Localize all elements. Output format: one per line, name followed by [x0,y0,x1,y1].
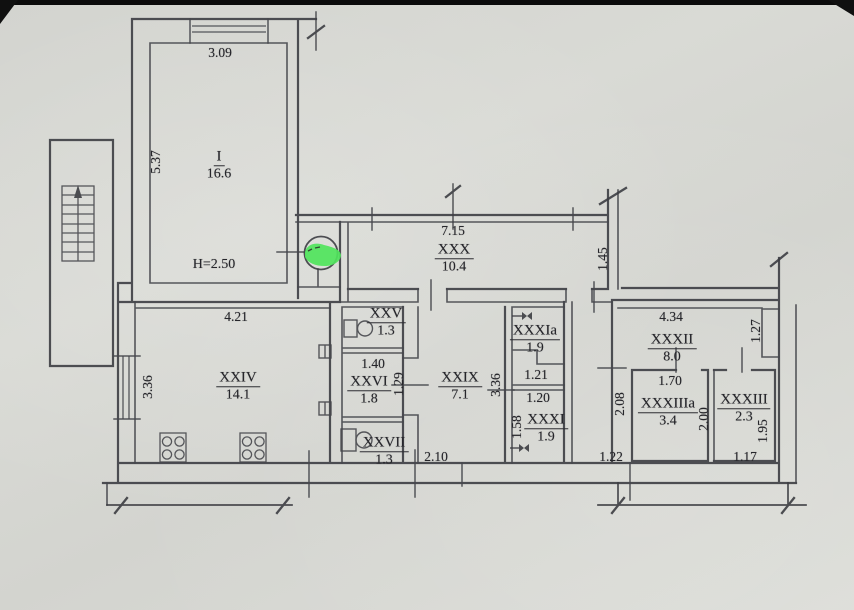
room-label-xxxii: XXXII 8.0 [648,331,697,364]
dim-1-27: 1.27 [748,319,764,343]
dim-1-40: 1.40 [361,356,385,372]
dim-1-45: 1.45 [595,247,611,271]
dim-2-10: 2.10 [424,449,448,465]
ceiling-height-note: H=2.50 [193,257,236,273]
room-area: 16.6 [207,166,232,182]
dim-1-70: 1.70 [658,373,682,389]
room-area: 1.3 [377,323,395,339]
dim-7-15: 7.15 [441,223,465,239]
room-numeral: XXVII [360,434,409,452]
dim-1-95: 1.95 [755,419,771,443]
room-numeral: I [214,148,225,166]
room-label-xxxia: XXXIa 1.9 [510,322,560,355]
room-label-xxvi: XXVI 1.8 [347,373,391,406]
room-numeral: XXIV [216,369,260,387]
valve-icon [512,312,532,320]
room-area: 14.1 [226,387,251,403]
dim-1-17: 1.17 [733,449,757,465]
room-numeral: XXIX [438,369,482,387]
room-numeral: XXXIII [717,391,770,409]
dim-4-34: 4.34 [659,309,683,325]
dim-3-09: 3.09 [208,45,232,61]
room-numeral: XXXI [524,411,568,429]
dim-4-21: 4.21 [224,309,248,325]
room-label-i: I 16.6 [207,148,232,181]
room-label-xxxi: XXXI 1.9 [524,411,568,444]
stove-icon [160,433,186,462]
dim-1-29: 1.29 [391,372,407,396]
room-label-xxiv: XXIV 14.1 [216,369,260,402]
dim-1-58: 1.58 [509,415,525,439]
window-lines [123,26,266,419]
room-numeral: XXX [435,241,474,259]
room-numeral: XXXIa [510,322,560,340]
room-area: 1.8 [360,391,378,407]
room-area: 1.9 [537,429,555,445]
dim-1-22: 1.22 [599,449,623,465]
dim-2-08: 2.08 [612,392,628,416]
room-numeral: XXVI [347,373,391,391]
stamp [305,237,342,270]
dim-2-00: 2.00 [696,407,712,431]
dim-5-37: 5.37 [148,150,164,174]
stove-icon [240,433,266,462]
dim-3-36-kitchen: 3.36 [140,375,156,399]
room-label-xxv: XXV 1.3 [367,305,406,338]
room-label-xxxiiia: XXXIIIa 3.4 [638,395,698,428]
stove-icons [160,433,266,462]
floor-plan-drawing [0,0,854,610]
staircase [62,185,94,261]
valve-icon [510,444,529,452]
room-area: 1.9 [526,340,544,356]
stairs-up-arrow-icon [74,185,82,198]
room-numeral: XXV [367,305,406,323]
dim-1-21: 1.21 [524,367,548,383]
room-area: 1.3 [375,452,393,468]
room-area: 8.0 [663,349,681,365]
room-numeral: XXXIIIa [638,395,698,413]
room-area: 10.4 [442,259,467,275]
floor-plan-photo: I 16.6 XXX 10.4 XXIV 14.1 XXV 1.3 XXVI 1… [0,0,854,610]
dim-1-20: 1.20 [526,390,550,406]
room-label-xxvii: XXVII 1.3 [360,434,409,467]
room-label-xxix: XXIX 7.1 [438,369,482,402]
room-area: 2.3 [735,409,753,425]
room-numeral: XXXII [648,331,697,349]
photo-corner-shadows [0,0,854,24]
room-area: 7.1 [451,387,469,403]
dim-3-36-xxix: 3.36 [488,373,504,397]
room-area: 3.4 [659,413,677,429]
room-label-xxx: XXX 10.4 [435,241,474,274]
